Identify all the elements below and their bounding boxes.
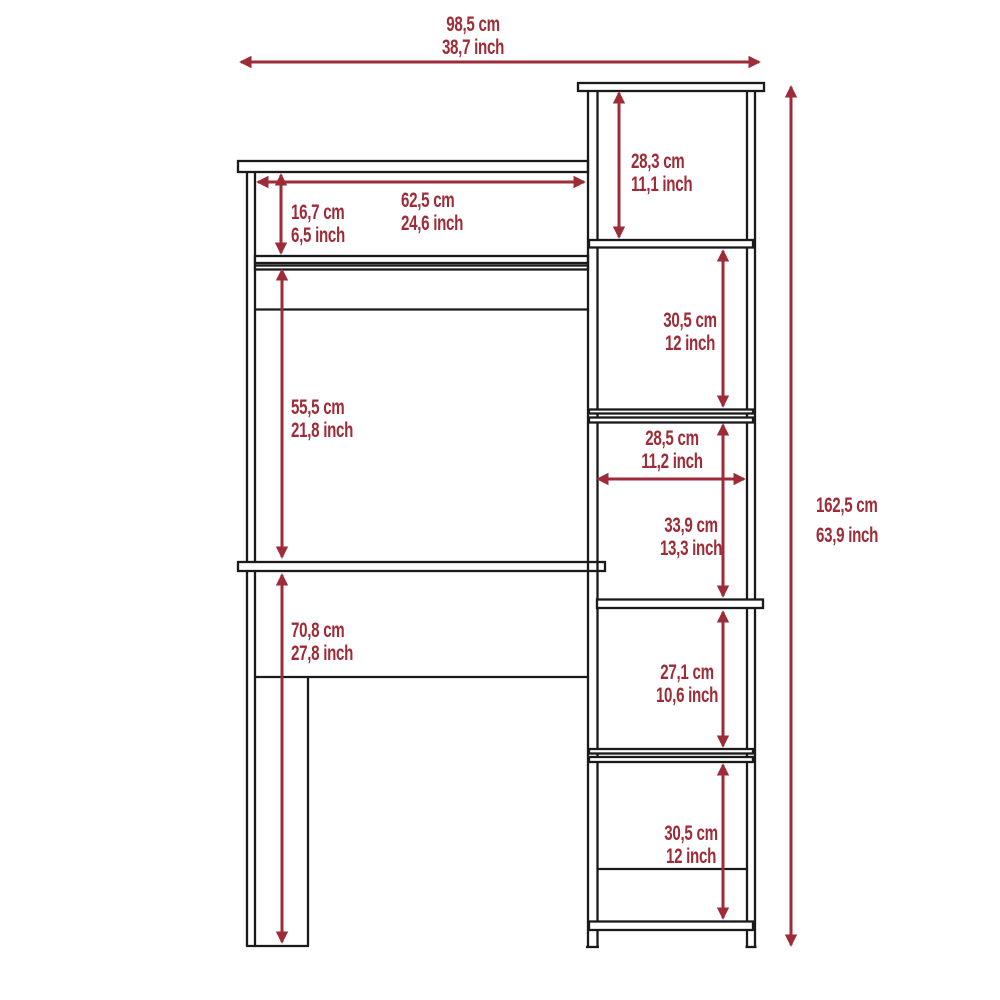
dim-value-inch: 10,6 inch bbox=[644, 684, 730, 707]
dim-value-inch: 63,9 inch bbox=[816, 521, 878, 551]
dim-value-inch: 24,6 inch bbox=[401, 212, 463, 235]
dim-label-desktop-to-floor: 70,8 cm 27,8 inch bbox=[291, 619, 353, 665]
tower-shelf-2b bbox=[589, 418, 753, 423]
hutch-top-board bbox=[238, 161, 588, 172]
dim-value-cm: 55,5 cm bbox=[291, 396, 353, 419]
hutch-shelf-board bbox=[255, 256, 588, 263]
dim-value-cm: 30,5 cm bbox=[647, 309, 733, 332]
tower-bottom-board bbox=[589, 922, 753, 931]
dim-value-cm: 33,9 cm bbox=[648, 514, 734, 537]
dim-value-cm: 70,8 cm bbox=[291, 619, 353, 642]
dimension-diagram-canvas: 98,5 cm 38,7 inch 162,5 cm 63,9 inch 62,… bbox=[0, 0, 1000, 1000]
hutch-rail-board bbox=[255, 266, 588, 270]
dim-value-inch: 13,3 inch bbox=[648, 537, 734, 560]
tower-shelf-2a bbox=[589, 410, 753, 414]
dim-label-tower-cubby-5: 30,5 cm 12 inch bbox=[648, 822, 734, 868]
dim-value-inch: 11,2 inch bbox=[629, 450, 715, 473]
dim-value-inch: 6,5 inch bbox=[291, 224, 345, 247]
dim-label-tower-inner-width: 28,5 cm 11,2 inch bbox=[629, 427, 715, 473]
dim-label-hutch-to-desktop: 55,5 cm 21,8 inch bbox=[291, 396, 353, 442]
desk-outline bbox=[238, 161, 605, 946]
dim-label-tower-cubby-1: 28,3 cm 11,1 inch bbox=[631, 150, 692, 196]
dim-label-hutch-inner-width: 62,5 cm 24,6 inch bbox=[401, 189, 463, 235]
dim-label-hutch-opening-height: 16,7 cm 6,5 inch bbox=[291, 201, 345, 247]
dim-value-inch: 11,1 inch bbox=[631, 173, 692, 196]
dim-value-inch: 12 inch bbox=[648, 845, 734, 868]
dim-value-inch: 27,8 inch bbox=[291, 642, 353, 665]
dim-value-cm: 16,7 cm bbox=[291, 201, 345, 224]
dim-value-cm: 28,5 cm bbox=[629, 427, 715, 450]
dim-label-overall-height: 162,5 cm 63,9 inch bbox=[816, 491, 878, 551]
dim-label-tower-cubby-2: 30,5 cm 12 inch bbox=[647, 309, 733, 355]
dim-label-overall-width: 98,5 cm 38,7 inch bbox=[430, 13, 516, 59]
dim-value-inch: 12 inch bbox=[647, 332, 733, 355]
desk-top-board bbox=[238, 562, 605, 571]
dim-value-cm: 162,5 cm bbox=[816, 491, 878, 521]
dim-value-cm: 30,5 cm bbox=[648, 822, 734, 845]
dim-value-inch: 38,7 inch bbox=[430, 36, 516, 59]
dim-label-tower-cubby-3: 33,9 cm 13,3 inch bbox=[648, 514, 734, 560]
tower-shelf-3-protruding bbox=[597, 600, 763, 609]
dim-value-cm: 98,5 cm bbox=[430, 13, 516, 36]
tower-shelf-1 bbox=[589, 240, 753, 248]
dim-value-cm: 28,3 cm bbox=[631, 150, 692, 173]
dim-value-cm: 62,5 cm bbox=[401, 189, 463, 212]
tower-shelf-4b bbox=[589, 757, 753, 762]
dim-value-cm: 27,1 cm bbox=[644, 661, 730, 684]
tower-shelf-4a bbox=[589, 749, 753, 754]
dimension-arrows bbox=[241, 62, 791, 945]
tower-top-board bbox=[578, 83, 764, 91]
dim-value-inch: 21,8 inch bbox=[291, 419, 353, 442]
dim-label-tower-cubby-4: 27,1 cm 10,6 inch bbox=[644, 661, 730, 707]
